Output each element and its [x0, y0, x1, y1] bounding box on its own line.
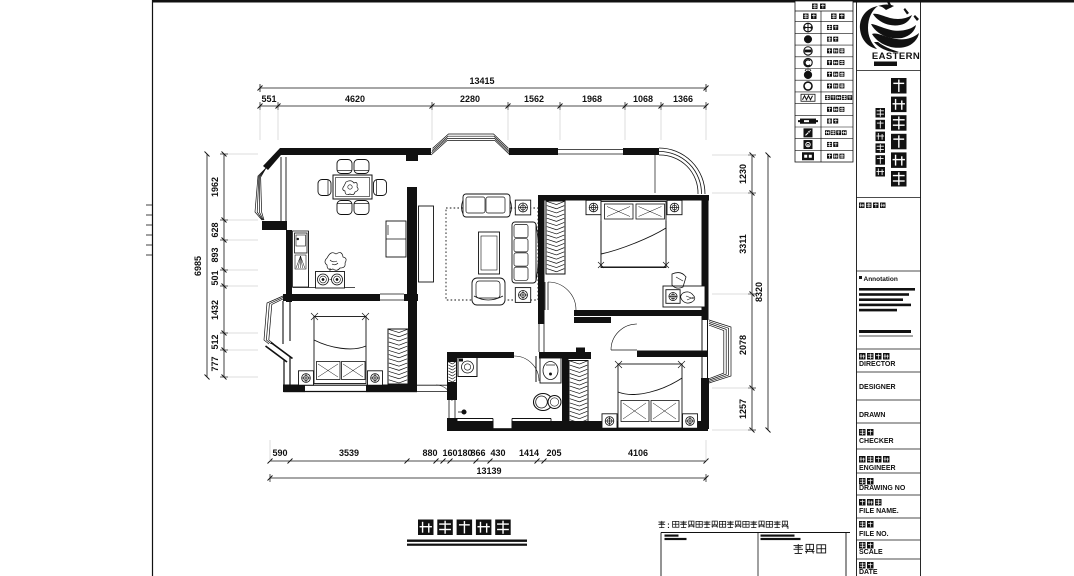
svg-text:777: 777	[210, 356, 220, 371]
svg-text:8320: 8320	[754, 282, 764, 302]
svg-text:1068: 1068	[633, 94, 653, 104]
svg-text:FILE NAME.: FILE NAME.	[859, 508, 899, 515]
svg-text:DIRECTOR: DIRECTOR	[859, 361, 895, 368]
svg-text:1257: 1257	[738, 399, 748, 419]
svg-text:SCALE: SCALE	[859, 549, 883, 556]
svg-text:880: 880	[422, 448, 437, 458]
svg-text:ENGINEER: ENGINEER	[859, 465, 896, 472]
svg-text:205: 205	[546, 448, 561, 458]
svg-text:DRAWING NO: DRAWING NO	[859, 485, 906, 492]
svg-text:FILE NO.: FILE NO.	[859, 531, 889, 538]
svg-text:13139: 13139	[476, 466, 501, 476]
svg-text:1968: 1968	[582, 94, 602, 104]
svg-text:160: 160	[442, 448, 457, 458]
svg-text:430: 430	[490, 448, 505, 458]
svg-text:501: 501	[210, 270, 220, 285]
svg-text:3539: 3539	[339, 448, 359, 458]
svg-text:3311: 3311	[738, 234, 748, 254]
svg-text:1366: 1366	[673, 94, 693, 104]
svg-text:551: 551	[261, 94, 276, 104]
svg-text:1230: 1230	[738, 164, 748, 184]
svg-text:1562: 1562	[524, 94, 544, 104]
svg-text:4106: 4106	[628, 448, 648, 458]
svg-text:4620: 4620	[345, 94, 365, 104]
svg-text:EASTERN: EASTERN	[872, 51, 920, 62]
svg-text:6985: 6985	[193, 256, 203, 276]
svg-text:DATE: DATE	[859, 569, 878, 576]
svg-text:893: 893	[210, 247, 220, 262]
svg-text:1432: 1432	[210, 300, 220, 320]
svg-text:DRAWN: DRAWN	[859, 412, 885, 419]
svg-text:2078: 2078	[738, 335, 748, 355]
svg-text:1414: 1414	[519, 448, 539, 458]
svg-text::: :	[667, 521, 670, 530]
svg-text:Annotation: Annotation	[864, 276, 898, 283]
svg-text:628: 628	[210, 222, 220, 237]
svg-text:DESIGNER: DESIGNER	[859, 384, 896, 391]
svg-text:2280: 2280	[460, 94, 480, 104]
svg-text:13415: 13415	[469, 76, 494, 86]
svg-text:866: 866	[470, 448, 485, 458]
svg-text:512: 512	[210, 334, 220, 349]
svg-text:CHECKER: CHECKER	[859, 438, 894, 445]
svg-text:1962: 1962	[210, 177, 220, 197]
svg-text:590: 590	[272, 448, 287, 458]
svg-text:。: 。	[787, 523, 794, 530]
